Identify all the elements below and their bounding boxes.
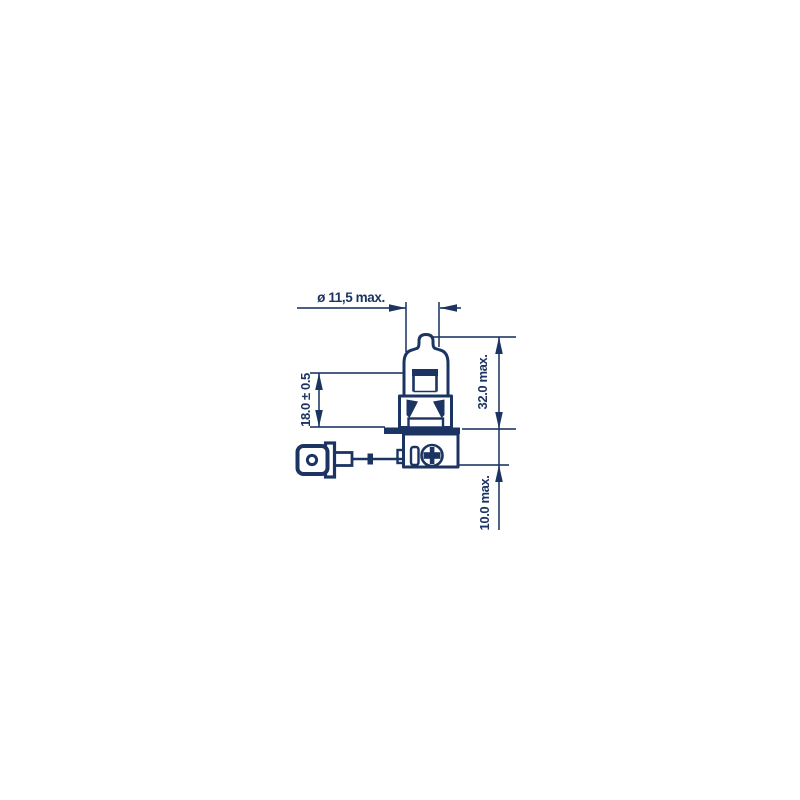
overall-length-dimension-label: 32.0 max. xyxy=(475,355,490,410)
glass-envelope xyxy=(404,335,448,397)
base-slot xyxy=(411,447,419,465)
arrow-up-icon xyxy=(495,465,503,482)
dimension-labels: ø 11,5 max. 18.0 ± 0.5 32.0 max. 10.0 ma… xyxy=(298,290,492,530)
diameter-dimension-label: ø 11,5 max. xyxy=(317,290,385,305)
bulb-technical-drawing: ø 11,5 max. 18.0 ± 0.5 32.0 max. 10.0 ma… xyxy=(0,0,800,800)
screw-slot-vertical xyxy=(430,447,435,464)
drawing-canvas: ø 11,5 max. 18.0 ± 0.5 32.0 max. 10.0 ma… xyxy=(0,0,800,800)
h3-bulb-figure xyxy=(298,335,461,478)
arrow-down-icon xyxy=(495,412,503,429)
base-insert-plate xyxy=(409,419,444,428)
arrow-up-icon xyxy=(315,373,323,390)
arrow-right-icon xyxy=(389,304,406,312)
arrow-left-icon xyxy=(440,304,457,312)
envelope-length-dimension-label: 18.0 ± 0.5 xyxy=(298,373,313,427)
arrow-down-icon xyxy=(315,410,323,427)
terminal-hole xyxy=(307,455,316,464)
wire-crimp xyxy=(368,454,374,465)
arrow-up-icon xyxy=(495,337,503,354)
wire-sleeve xyxy=(335,453,353,466)
filament-shield-top xyxy=(412,369,438,376)
base-depth-dimension-label: 10.0 max. xyxy=(477,476,492,531)
